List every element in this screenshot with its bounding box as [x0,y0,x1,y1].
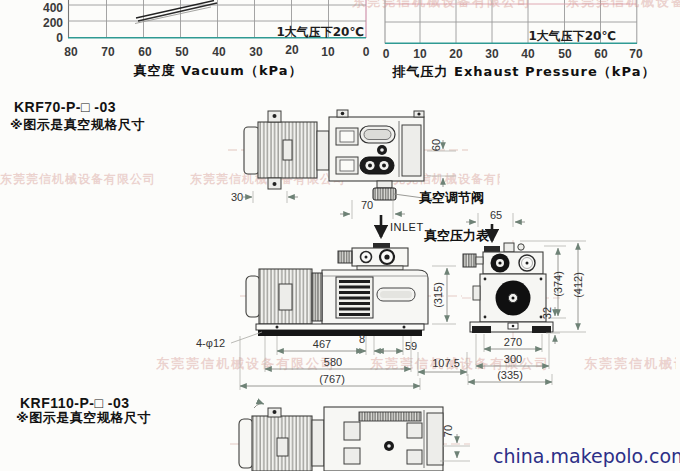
krf110-top-view-drawing [230,404,470,471]
company-watermark: 东莞莞信机械设备有限公司 [566,0,680,9]
x-tick: 0 [363,45,370,59]
x-tick: 20 [449,47,462,61]
model-number-krf70: KRF70-P-□ -03 [14,99,116,115]
dim-467: 467 [313,338,331,350]
x-tick: 30 [485,47,498,61]
site-watermark: china.makepolo.com [493,445,680,467]
dim-335: (335) [497,369,523,381]
krf110-top-view-dimensions: 70 [440,425,470,461]
x-tick: 70 [101,45,114,59]
dim-767: (767) [319,373,345,385]
dim-65: 65 [490,209,502,221]
dim-374: (374) [552,271,564,297]
dimension-drawings: 30 60 真空调节阀 70 INLET 真空压力表 65 [183,100,680,471]
dim-mounting-holes: 4-φ12 [196,337,225,349]
x-tick: 10 [321,45,334,59]
dim-412: (412) [572,272,584,298]
dim-70: 70 [361,199,373,211]
x-tick: 0 [383,47,390,61]
dim-60: 60 [430,139,442,151]
dim-8: 8 [359,333,365,345]
left-chart-curves [135,1,217,24]
model-note-krf70: ※图示是真空规格尺寸 [10,116,145,134]
krf70-side-view-drawing [240,243,462,336]
company-watermark: 东莞莞信机械设备有限公司 [352,0,532,9]
x-tick: 50 [175,45,188,59]
x-tick: 30 [249,45,262,59]
y-tick: 200 [43,16,63,30]
inlet-label: INLET [390,221,424,233]
y-tick: 0 [56,31,63,45]
x-tick: 40 [212,45,225,59]
vacuum-regulator-label: 真空调节阀 [419,190,484,205]
company-watermark: 东莞莞信机械设备有限公司 [0,172,156,186]
chart-annotation: 1大气压下20℃ [528,28,616,45]
dim-107-5: 107.5 [432,357,460,369]
krf70-top-view-drawing [228,110,468,200]
dim-580: 580 [324,356,342,368]
x-axis-title: 真空度 Vacuum（kPa） [133,62,302,80]
dim-32: 32 [541,307,553,319]
chart-annotation: 1大气压下20℃ [276,24,364,41]
dim-270: 270 [504,336,522,348]
x-tick: 70 [629,47,642,61]
x-tick: 20 [285,43,298,57]
dim-30: 30 [231,191,243,203]
cooling-fan [496,281,531,316]
y-tick: 400 [43,1,63,15]
vacuum-regulator-valve [373,181,396,200]
dim-315: (315) [432,282,444,308]
x-tick: 60 [594,47,607,61]
dim-300: 300 [504,353,522,365]
x-axis-title: 排气压力 Exhaust Pressure（kPa） [393,63,656,81]
x-tick: 40 [521,47,534,61]
x-tick: 10 [413,47,426,61]
x-tick: 60 [138,45,151,59]
company-watermark-row: 东莞莞信机械设备有限公司东莞莞信机械设备有限公司 [352,0,680,11]
vacuum-gauge-label: 真空压力表 [424,228,490,243]
dim-70-krf110: 70 [442,425,454,437]
model-note-krf110: ※图示是真空规格尺寸 [16,409,151,427]
krf70-end-view-drawing [462,240,560,345]
x-tick: 80 [64,45,77,59]
x-tick: 50 [558,47,571,61]
